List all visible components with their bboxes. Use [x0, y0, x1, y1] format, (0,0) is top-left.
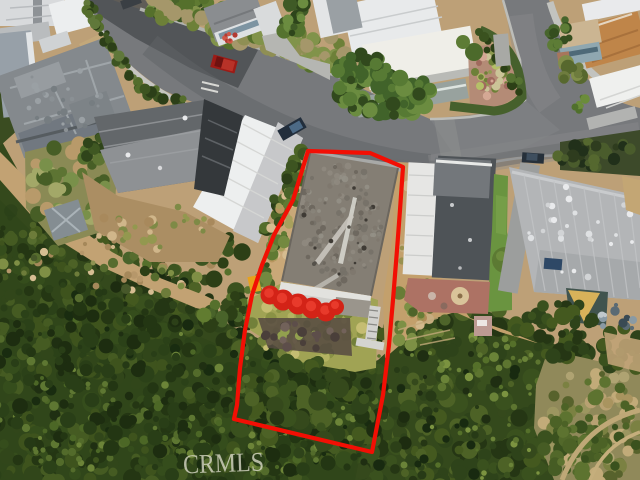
svg-text:CRMLS: CRMLS [183, 447, 265, 480]
